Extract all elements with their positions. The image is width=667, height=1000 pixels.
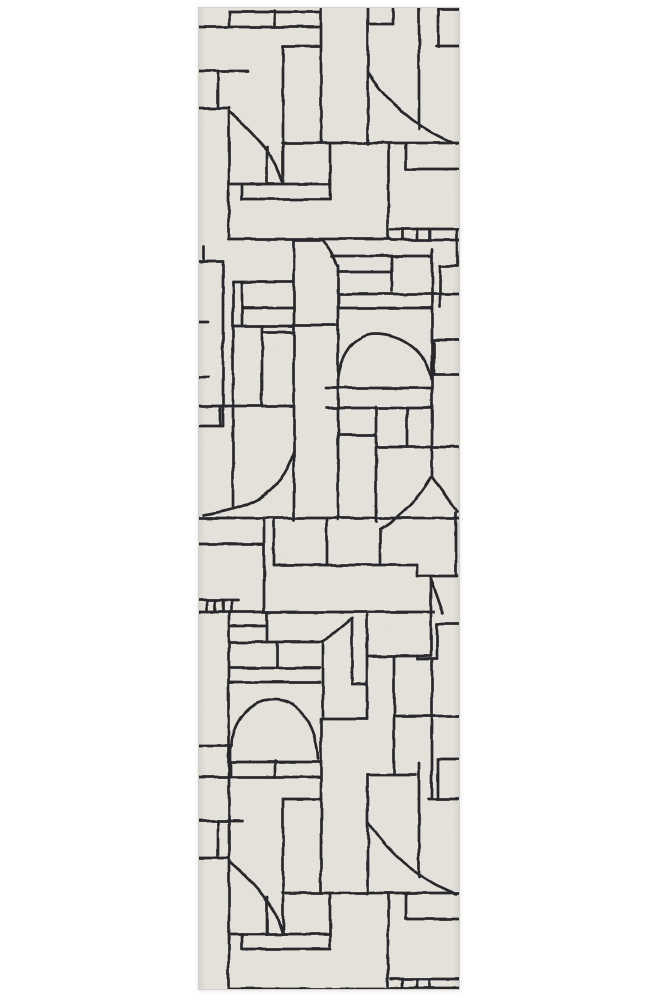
- runner-rug-photo: [198, 7, 460, 990]
- product-photo-page: [0, 0, 667, 1000]
- rug-image: [198, 7, 460, 990]
- rug-edge-shading: [198, 7, 460, 990]
